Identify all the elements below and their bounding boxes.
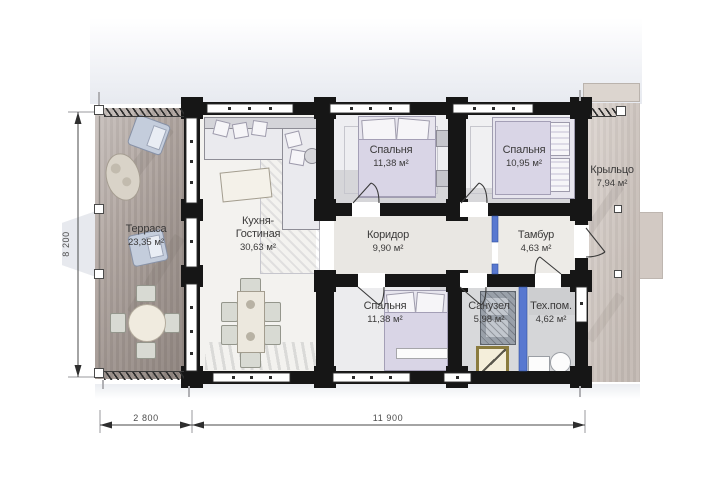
- terrace-railing-bottom: [104, 371, 184, 380]
- label-vestibule: Тамбур 4,63 м²: [518, 229, 554, 255]
- partition-bath-tech: [519, 287, 527, 371]
- room-area: 11,38 м²: [370, 157, 413, 170]
- wall-v1-upper: [316, 102, 334, 216]
- label-bedroom2: Спальня 10,95 м²: [503, 144, 546, 170]
- pin-mark: [579, 386, 581, 397]
- label-bathroom: Санузел 5,98 м²: [468, 300, 509, 326]
- label-corridor: Коридор 9,90 м²: [367, 229, 409, 255]
- room-area: 4,62 м²: [530, 313, 572, 326]
- room-name: Крыльцо: [590, 164, 633, 177]
- room-area: 9,90 м²: [367, 242, 409, 255]
- room-name: Кухня-: [236, 215, 281, 228]
- room-name: Гостиная: [236, 228, 281, 241]
- label-terrace: Терраса 23,35 м²: [126, 223, 167, 249]
- room-name: Спальня: [370, 144, 413, 157]
- room-name: Терраса: [126, 223, 167, 236]
- terrace-post: [94, 368, 104, 378]
- terrace-railing-top: [104, 108, 184, 117]
- porch-railing: [590, 108, 616, 117]
- terrace-post: [94, 105, 104, 115]
- room-area: 30,63 м²: [236, 241, 281, 254]
- partition-corridor-vestibule-upper: [492, 216, 498, 242]
- label-bedroom3: Спальня 11,38 м²: [364, 300, 407, 326]
- dimension-terrace-width: 2 800: [133, 413, 159, 423]
- room-area: 5,98 м²: [468, 313, 509, 326]
- plan-linework: [0, 0, 710, 502]
- room-area: 4,63 м²: [518, 242, 554, 255]
- room-name: Санузел: [468, 300, 509, 313]
- room-name: Тамбур: [518, 229, 554, 242]
- dimension-house-width: 11 900: [373, 413, 403, 423]
- door-tech-room: [535, 257, 561, 274]
- terrace-edge: [99, 116, 100, 371]
- room-area: 23,35 м²: [126, 236, 167, 249]
- porch-post: [614, 270, 622, 278]
- room-name: Коридор: [367, 229, 409, 242]
- porch-post: [616, 106, 626, 116]
- label-porch: Крыльцо 7,94 м²: [590, 164, 633, 190]
- pin-mark: [102, 380, 104, 389]
- label-bedroom1: Спальня 11,38 м²: [370, 144, 413, 170]
- pin-mark: [188, 386, 190, 397]
- pin-mark: [579, 90, 581, 101]
- room-area: 11,38 м²: [364, 313, 407, 326]
- dimension-total-depth: 8 200: [61, 231, 71, 257]
- terrace-post: [94, 269, 104, 279]
- room-area: 7,94 м²: [590, 177, 633, 190]
- door-bedroom1: [353, 183, 379, 203]
- porch-post: [614, 205, 622, 213]
- pin-mark: [98, 92, 100, 105]
- partition-corridor-vestibule-lower: [492, 264, 498, 274]
- label-kitchen-living: Кухня- Гостиная 30,63 м²: [236, 215, 281, 254]
- room-name: Тех.пом.: [530, 300, 572, 313]
- label-tech-room: Тех.пом. 4,62 м²: [530, 300, 572, 326]
- room-name: Спальня: [503, 144, 546, 157]
- room-name: Спальня: [364, 300, 407, 313]
- wall-v2-upper: [448, 102, 466, 216]
- room-area: 10,95 м²: [503, 157, 546, 170]
- terrace-post: [94, 204, 104, 214]
- floor-plan-canvas: Терраса 23,35 м² Кухня- Гостиная 30,63 м…: [0, 0, 710, 502]
